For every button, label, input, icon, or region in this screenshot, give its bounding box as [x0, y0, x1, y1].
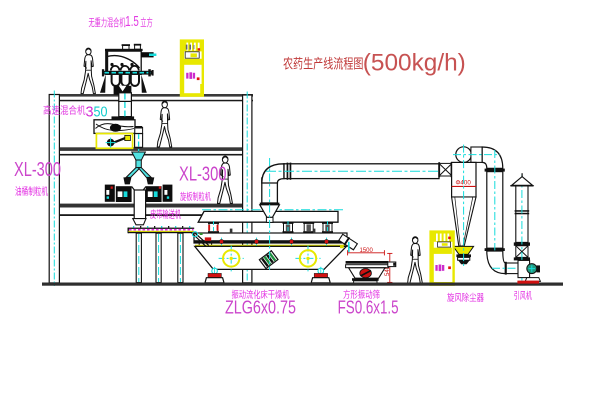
- svg-text:50: 50: [94, 105, 108, 121]
- svg-text:XL-300: XL-300: [179, 164, 227, 186]
- svg-text:FS0.6x1.5: FS0.6x1.5: [338, 298, 399, 318]
- svg-text:农药生产线流程图: 农药生产线流程图: [283, 57, 364, 72]
- svg-text:XL-300: XL-300: [14, 159, 61, 181]
- svg-text:(500kg/h): (500kg/h): [363, 49, 466, 76]
- svg-text:1.5: 1.5: [125, 13, 139, 30]
- svg-text:旋风除尘器: 旋风除尘器: [447, 292, 484, 304]
- svg-text:引风机: 引风机: [514, 290, 533, 302]
- svg-text:高速混合机: 高速混合机: [43, 104, 86, 117]
- svg-text:皮带输送机: 皮带输送机: [150, 208, 181, 221]
- svg-text:ZLG6x0.75: ZLG6x0.75: [225, 298, 296, 318]
- svg-text:立方: 立方: [140, 16, 153, 29]
- svg-text:油桶制粒机: 油桶制粒机: [15, 185, 48, 198]
- svg-text:3: 3: [86, 105, 94, 121]
- svg-text:1500: 1500: [360, 248, 374, 254]
- svg-text:旋板制粒机: 旋板制粒机: [180, 191, 211, 203]
- svg-text:无重力混合机: 无重力混合机: [89, 16, 126, 29]
